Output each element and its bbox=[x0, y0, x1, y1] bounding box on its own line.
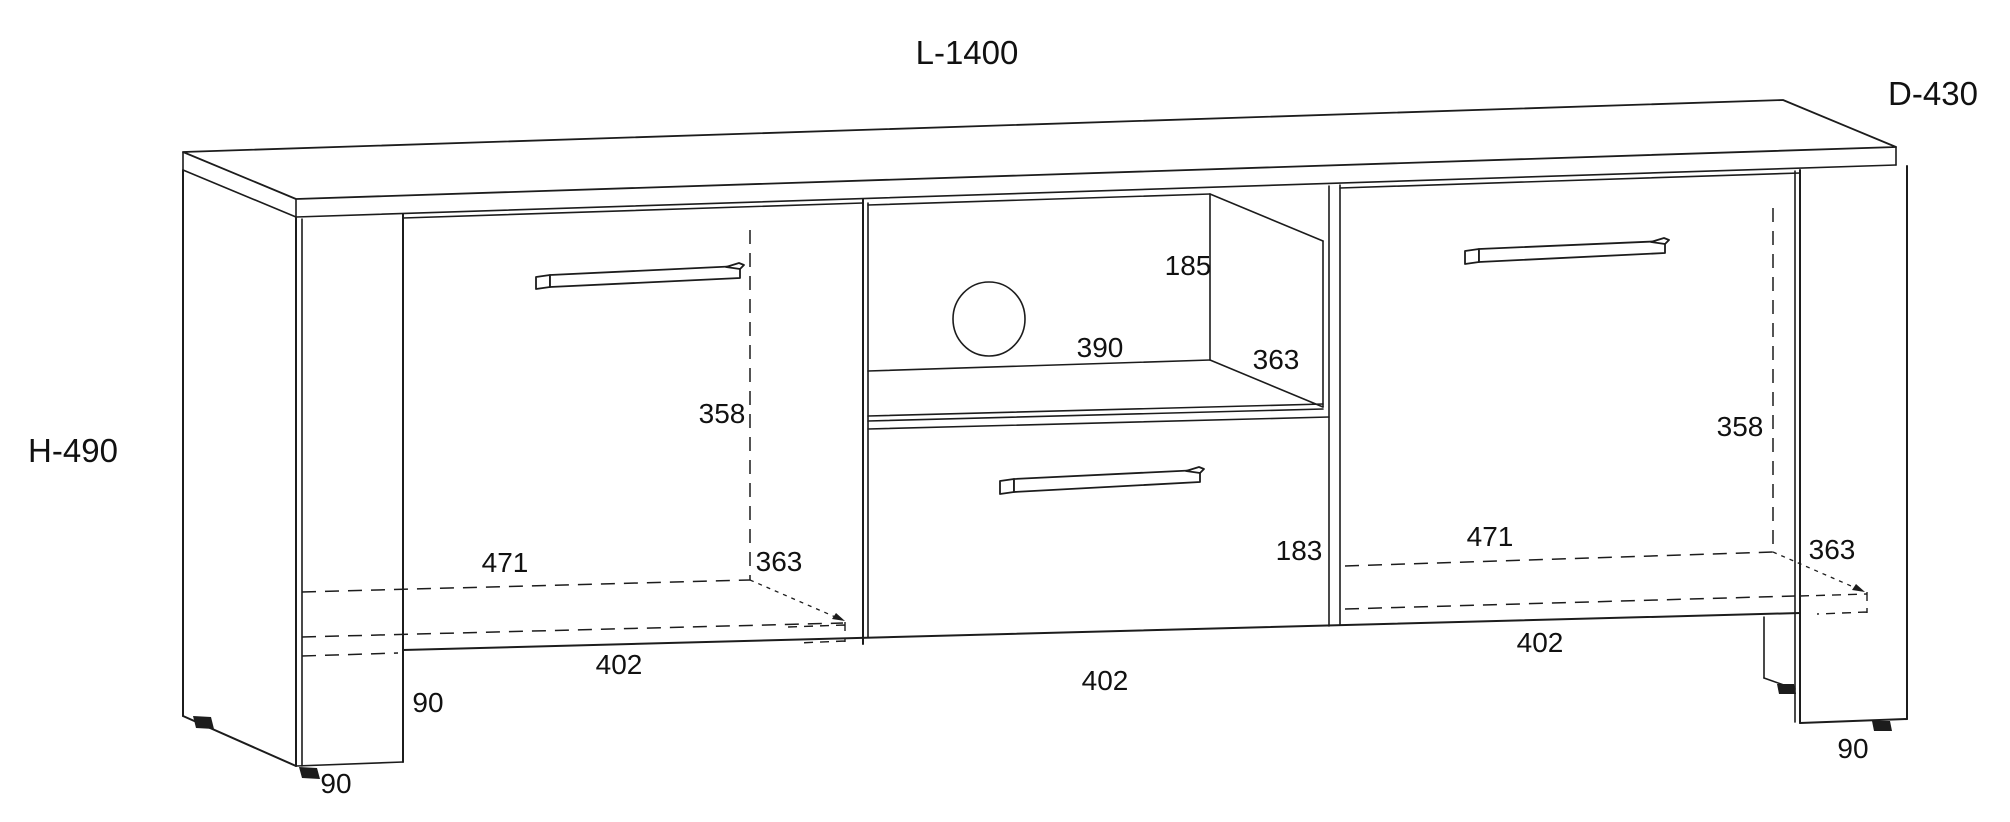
dim-niche-width: 390 bbox=[1077, 332, 1124, 363]
left-bottom-front-hidden-edge bbox=[302, 623, 843, 637]
dim-left-inner-depth: 363 bbox=[756, 546, 803, 577]
left-depth-arrowhead-icon bbox=[832, 613, 845, 621]
carcass-front-bottom-edge bbox=[403, 613, 1800, 650]
dim-drawer-front-height: 183 bbox=[1276, 535, 1323, 566]
left-handle-bar bbox=[550, 266, 740, 287]
cable-hole-icon bbox=[953, 282, 1025, 356]
dim-right-inner-height: 358 bbox=[1717, 411, 1764, 442]
dim-drawer-width: 402 bbox=[1082, 665, 1129, 696]
right-hidden-lines bbox=[1345, 208, 1867, 614]
left-handle-cap bbox=[536, 275, 550, 289]
dim-right-inner-depth: 363 bbox=[1809, 534, 1856, 565]
left-door-handle-icon bbox=[536, 263, 744, 289]
dim-left-inner-height: 358 bbox=[699, 398, 746, 429]
drawer-front bbox=[868, 417, 1329, 494]
left-door bbox=[403, 199, 863, 644]
drawer-handle-bar bbox=[1014, 470, 1200, 492]
drawer-handle-icon bbox=[1000, 467, 1204, 494]
right-bottom-back-hidden-edge bbox=[1345, 552, 1773, 566]
dim-left-inner-width: 471 bbox=[482, 547, 529, 578]
top-panel-face bbox=[183, 100, 1896, 199]
niche-back-top-edge bbox=[868, 194, 1210, 205]
left-leg-floor-edge bbox=[296, 762, 403, 766]
dim-plinth-gap-height: 90 bbox=[412, 687, 443, 718]
left-side-panel bbox=[183, 170, 403, 779]
right-handle-cap bbox=[1465, 249, 1479, 264]
dim-overall-length: L-1400 bbox=[916, 34, 1019, 71]
tv-cabinet-diagram: L-1400 D-430 H-490 185 390 363 358 358 4… bbox=[0, 0, 2010, 822]
dim-left-door-width: 402 bbox=[596, 649, 643, 680]
left-floor-hidden-edge bbox=[302, 653, 398, 656]
technical-drawing-page: L-1400 D-430 H-490 185 390 363 358 358 4… bbox=[0, 0, 2010, 822]
right-bottom-front-hidden-edge bbox=[1345, 596, 1795, 609]
right-front-foot-icon bbox=[1872, 721, 1892, 731]
dim-right-door-width: 402 bbox=[1517, 627, 1564, 658]
left-hidden-lines bbox=[302, 230, 845, 656]
niche-ceiling-right-edge bbox=[1210, 194, 1323, 241]
drawer-handle-tip bbox=[1186, 467, 1204, 473]
left-handle-tip bbox=[726, 263, 744, 269]
right-door bbox=[1340, 171, 1800, 722]
dim-overall-depth: D-430 bbox=[1888, 75, 1978, 112]
right-back-foot-icon bbox=[1777, 684, 1796, 694]
open-niche bbox=[868, 194, 1323, 421]
left-back-foot-icon bbox=[193, 716, 214, 729]
dim-niche-height: 185 bbox=[1165, 250, 1212, 281]
right-leg-floor-edge bbox=[1800, 719, 1907, 723]
right-handle-bar bbox=[1479, 241, 1665, 262]
right-side-panel bbox=[1764, 166, 1907, 731]
dim-right-leg-depth: 90 bbox=[1837, 733, 1868, 764]
drawer-handle-cap bbox=[1000, 479, 1014, 494]
right-depth-arrowhead-icon bbox=[1852, 584, 1865, 592]
left-depth-leader-line bbox=[750, 580, 840, 619]
dim-overall-height: H-490 bbox=[28, 432, 118, 469]
dim-left-leg-depth: 90 bbox=[320, 768, 351, 799]
right-door-handle-icon bbox=[1465, 238, 1669, 264]
dim-right-inner-width: 471 bbox=[1467, 521, 1514, 552]
niche-back-bottom-edge bbox=[868, 360, 1210, 371]
dim-niche-depth: 363 bbox=[1253, 344, 1300, 375]
right-handle-tip bbox=[1651, 238, 1669, 244]
right-bracket-top-line bbox=[1800, 594, 1867, 596]
left-bottom-back-hidden-edge bbox=[302, 580, 750, 592]
left-front-foot-icon bbox=[299, 767, 320, 779]
